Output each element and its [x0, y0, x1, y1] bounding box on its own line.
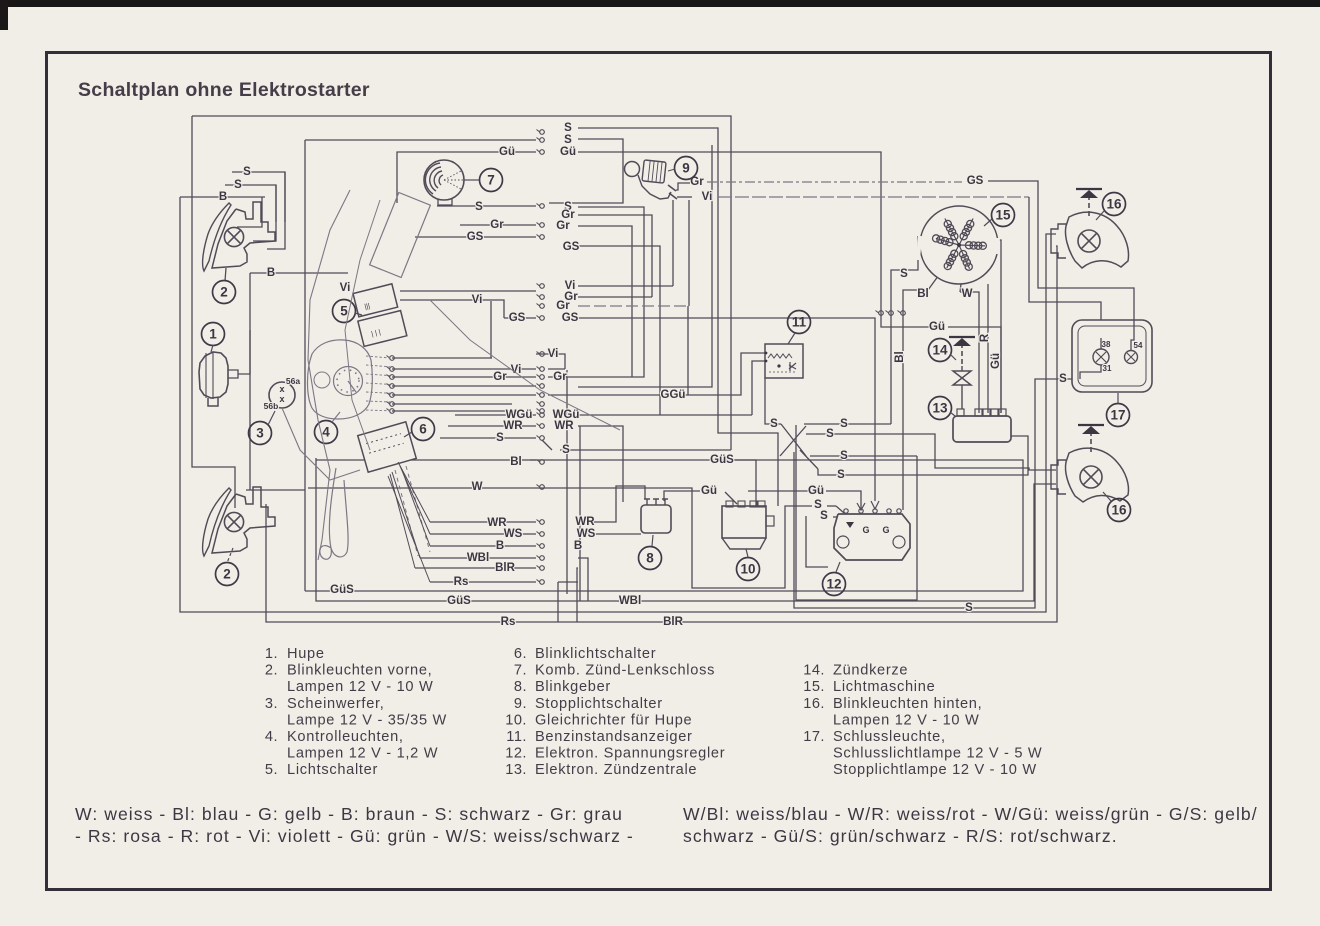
svg-text:Komb. Zünd-Lenkschloss: Komb. Zünd-Lenkschloss — [535, 663, 715, 679]
svg-text:Blinkgeber: Blinkgeber — [535, 679, 611, 695]
svg-text:7: 7 — [487, 173, 495, 188]
svg-text:Gr: Gr — [490, 219, 504, 231]
svg-text:Rs: Rs — [454, 576, 469, 588]
svg-text:Lampen 12 V - 10 W: Lampen 12 V - 10 W — [287, 679, 433, 695]
svg-text:Gleichrichter für Hupe: Gleichrichter für Hupe — [535, 712, 692, 728]
svg-text:W/Bl: weiss/blau - W/R: weiss/: W/Bl: weiss/blau - W/R: weiss/rot - W/Gü… — [683, 804, 1258, 824]
svg-text:Vi: Vi — [340, 282, 351, 294]
svg-text:GS: GS — [467, 231, 484, 243]
svg-text:GüS: GüS — [330, 584, 354, 596]
svg-text:Lampe 12 V - 35/35 W: Lampe 12 V - 35/35 W — [287, 712, 447, 728]
svg-text:S: S — [1059, 373, 1067, 385]
svg-text:16.: 16. — [803, 696, 825, 712]
svg-text:S: S — [840, 418, 848, 430]
svg-text:S: S — [564, 134, 572, 146]
svg-text:4.: 4. — [265, 729, 278, 745]
svg-text:Hupe: Hupe — [287, 646, 325, 662]
svg-text:Blinklichtschalter: Blinklichtschalter — [535, 646, 656, 662]
svg-text:Vi: Vi — [548, 348, 559, 360]
svg-text:S: S — [840, 450, 848, 462]
svg-text:Vi: Vi — [702, 191, 713, 203]
svg-text:1.: 1. — [265, 646, 278, 662]
svg-text:- Rs: rosa - R: rot - Vi: viol: - Rs: rosa - R: rot - Vi: violett - Gü: … — [75, 826, 634, 846]
svg-text:Lampen 12 V - 1,2 W: Lampen 12 V - 1,2 W — [287, 746, 438, 762]
svg-text:10.: 10. — [505, 712, 527, 728]
svg-text:GS: GS — [967, 175, 984, 187]
svg-text:Bl: Bl — [894, 351, 906, 363]
svg-text:GüS: GüS — [447, 595, 471, 607]
svg-text:Schaltplan ohne Elektrostarter: Schaltplan ohne Elektrostarter — [78, 79, 370, 101]
svg-text:56a: 56a — [286, 376, 300, 386]
svg-text:WS: WS — [577, 528, 596, 540]
svg-text:12.: 12. — [505, 746, 527, 762]
svg-text:3: 3 — [256, 426, 264, 441]
svg-text:W: weiss - Bl: blau - G: gelb: W: weiss - Bl: blau - G: gelb - B: braun… — [75, 804, 623, 824]
svg-text:G: G — [862, 525, 869, 535]
svg-text:W: W — [962, 288, 973, 300]
svg-text:2.: 2. — [265, 663, 278, 679]
svg-text:Schlusslichtlampe 12 V - 5 W: Schlusslichtlampe 12 V - 5 W — [833, 746, 1042, 762]
svg-text:17.: 17. — [803, 729, 825, 745]
svg-text:S: S — [770, 418, 778, 430]
svg-text:8.: 8. — [514, 679, 527, 695]
svg-text:WR: WR — [503, 420, 523, 432]
svg-text:13: 13 — [932, 401, 948, 416]
svg-text:13.: 13. — [505, 762, 527, 778]
svg-text:B: B — [496, 540, 504, 552]
svg-text:GS: GS — [509, 312, 526, 324]
svg-text:Gü: Gü — [701, 485, 717, 497]
svg-text:9.: 9. — [514, 696, 527, 712]
svg-text:S: S — [820, 510, 828, 522]
svg-text:S: S — [496, 432, 504, 444]
svg-text:S: S — [837, 469, 845, 481]
svg-text:9: 9 — [682, 161, 690, 176]
svg-text:S: S — [234, 179, 242, 191]
svg-text:WBl: WBl — [619, 595, 641, 607]
svg-text:Gü: Gü — [808, 485, 824, 497]
svg-text:G: G — [882, 525, 889, 535]
svg-text:Vi: Vi — [472, 294, 483, 306]
svg-text:S: S — [475, 201, 483, 213]
svg-text:BlR: BlR — [495, 562, 516, 574]
svg-text:17: 17 — [1110, 408, 1125, 423]
svg-text:11: 11 — [792, 315, 807, 330]
svg-text:7.: 7. — [514, 663, 527, 679]
svg-text:3.: 3. — [265, 696, 278, 712]
svg-text:W: W — [472, 481, 483, 493]
svg-text:GS: GS — [563, 241, 580, 253]
svg-text:schwarz - Gü/S: grün/schwarz -: schwarz - Gü/S: grün/schwarz - R/S: rot/… — [683, 826, 1118, 846]
svg-text:31: 31 — [1103, 364, 1112, 373]
svg-text:BlR: BlR — [663, 616, 684, 628]
svg-text:Gü: Gü — [929, 321, 945, 333]
svg-text:10: 10 — [740, 562, 755, 577]
svg-text:Elektron. Zündzentrale: Elektron. Zündzentrale — [535, 762, 697, 778]
svg-text:Elektron. Spannungsregler: Elektron. Spannungsregler — [535, 746, 725, 762]
svg-text:2: 2 — [223, 567, 231, 582]
svg-text:S: S — [900, 268, 908, 280]
svg-text:Schlussleuchte,: Schlussleuchte, — [833, 729, 946, 745]
svg-text:Lichtmaschine: Lichtmaschine — [833, 679, 935, 695]
svg-text:Gü: Gü — [499, 146, 515, 158]
svg-text:Gr: Gr — [553, 371, 567, 383]
svg-text:WR: WR — [575, 516, 595, 528]
svg-text:Lichtschalter: Lichtschalter — [287, 762, 378, 778]
svg-text:B: B — [574, 540, 582, 552]
svg-text:Bl: Bl — [917, 288, 929, 300]
svg-text:Benzinstandsanzeiger: Benzinstandsanzeiger — [535, 729, 693, 745]
svg-text:S: S — [562, 444, 570, 456]
svg-text:2: 2 — [220, 285, 228, 300]
svg-text:S: S — [243, 166, 251, 178]
svg-text:54: 54 — [1134, 341, 1143, 350]
svg-text:WS: WS — [504, 528, 523, 540]
svg-text:12: 12 — [826, 577, 841, 592]
svg-text:R: R — [979, 333, 991, 342]
svg-text:Gr: Gr — [556, 300, 570, 312]
svg-text:5: 5 — [340, 304, 348, 319]
svg-text:6: 6 — [419, 422, 427, 437]
svg-text:B: B — [267, 267, 275, 279]
svg-text:15.: 15. — [803, 679, 825, 695]
svg-text:Zündkerze: Zündkerze — [833, 663, 908, 679]
svg-text:x: x — [279, 394, 284, 404]
svg-text:Rs: Rs — [501, 616, 516, 628]
svg-text:S: S — [564, 122, 572, 134]
svg-text:5.: 5. — [265, 762, 278, 778]
svg-text:1: 1 — [209, 327, 217, 342]
svg-text:B: B — [219, 191, 227, 203]
svg-text:16: 16 — [1106, 197, 1122, 212]
svg-text:Gü: Gü — [990, 353, 1002, 369]
svg-text:8: 8 — [646, 551, 654, 566]
svg-text:Gü: Gü — [560, 146, 576, 158]
svg-text:14: 14 — [932, 343, 948, 358]
svg-text:56b: 56b — [264, 401, 279, 411]
svg-text:S: S — [965, 602, 973, 614]
svg-text:Blinkleuchten vorne,: Blinkleuchten vorne, — [287, 663, 432, 679]
svg-text:Gr: Gr — [493, 371, 507, 383]
svg-text:16: 16 — [1111, 503, 1127, 518]
svg-text:38: 38 — [1102, 340, 1111, 349]
svg-text:6.: 6. — [514, 646, 527, 662]
svg-text:WR: WR — [554, 420, 574, 432]
svg-text:S: S — [826, 428, 834, 440]
svg-text:Kontrolleuchten,: Kontrolleuchten, — [287, 729, 404, 745]
svg-text:Lampen 12 V - 10 W: Lampen 12 V - 10 W — [833, 712, 979, 728]
svg-text:15: 15 — [995, 208, 1011, 223]
svg-text:Stopplichtschalter: Stopplichtschalter — [535, 696, 663, 712]
svg-text:Blinkleuchten hinten,: Blinkleuchten hinten, — [833, 696, 982, 712]
svg-text:Stopplichtlampe 12 V - 10 W: Stopplichtlampe 12 V - 10 W — [833, 762, 1037, 778]
svg-text:11.: 11. — [506, 729, 527, 745]
svg-text:GGü: GGü — [661, 389, 686, 401]
svg-text:4: 4 — [322, 425, 330, 440]
svg-text:GüS: GüS — [710, 454, 734, 466]
svg-text:Gr: Gr — [556, 220, 570, 232]
svg-text:WBl: WBl — [467, 552, 489, 564]
svg-text:Scheinwerfer,: Scheinwerfer, — [287, 696, 385, 712]
svg-text:14.: 14. — [803, 663, 825, 679]
svg-text:GS: GS — [562, 312, 579, 324]
svg-text:Bl: Bl — [510, 456, 522, 468]
svg-text:x: x — [279, 384, 284, 394]
